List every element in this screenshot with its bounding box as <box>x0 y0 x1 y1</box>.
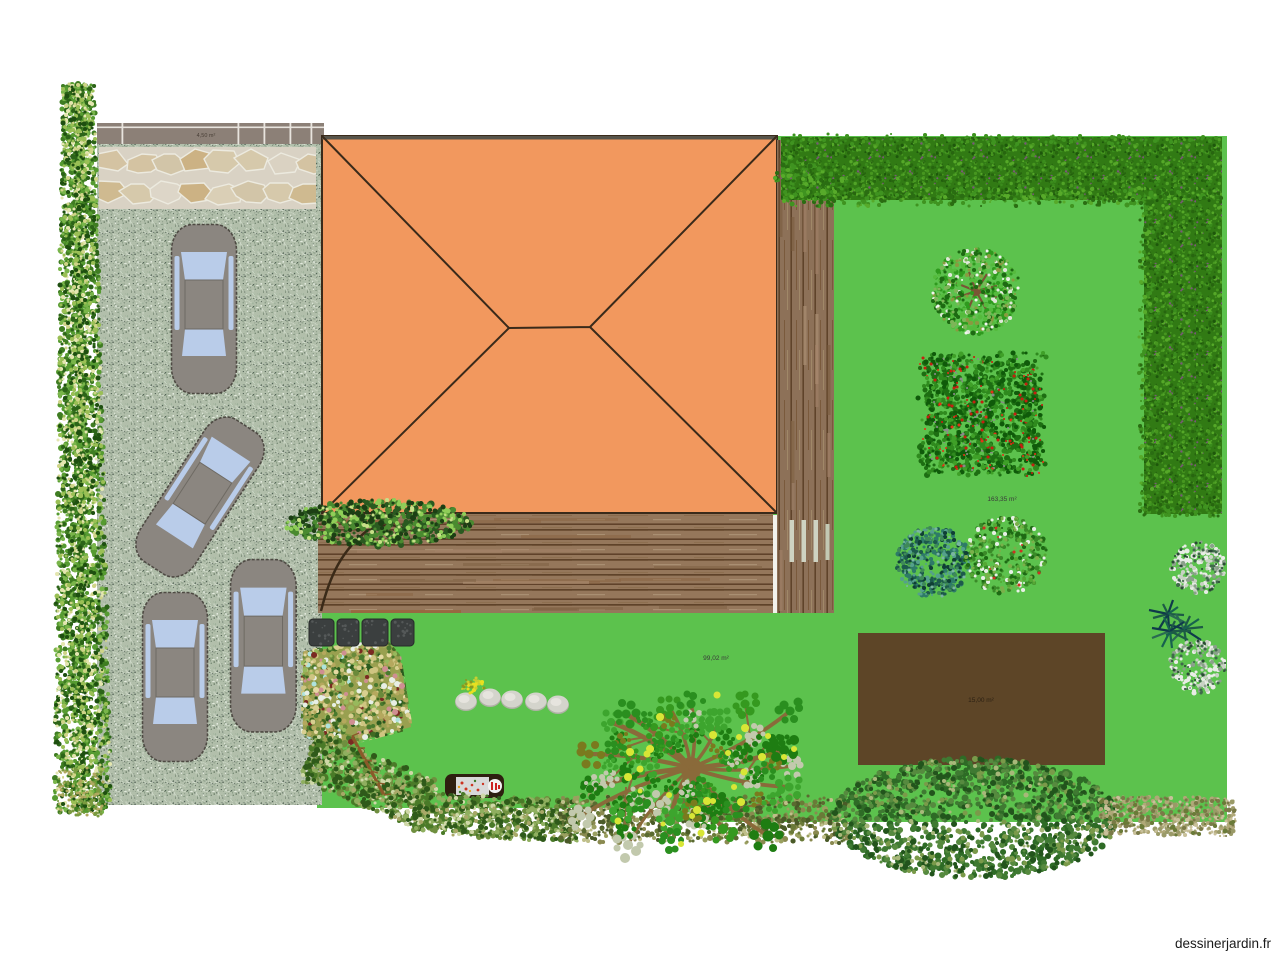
svg-text:163,35 m²: 163,35 m² <box>987 496 1017 503</box>
svg-text:15,00 m²: 15,00 m² <box>968 697 994 704</box>
svg-text:4,50 m²: 4,50 m² <box>197 133 216 139</box>
svg-text:dessinerjardin.fr: dessinerjardin.fr <box>1175 936 1272 951</box>
svg-text:99,02 m²: 99,02 m² <box>703 655 729 662</box>
